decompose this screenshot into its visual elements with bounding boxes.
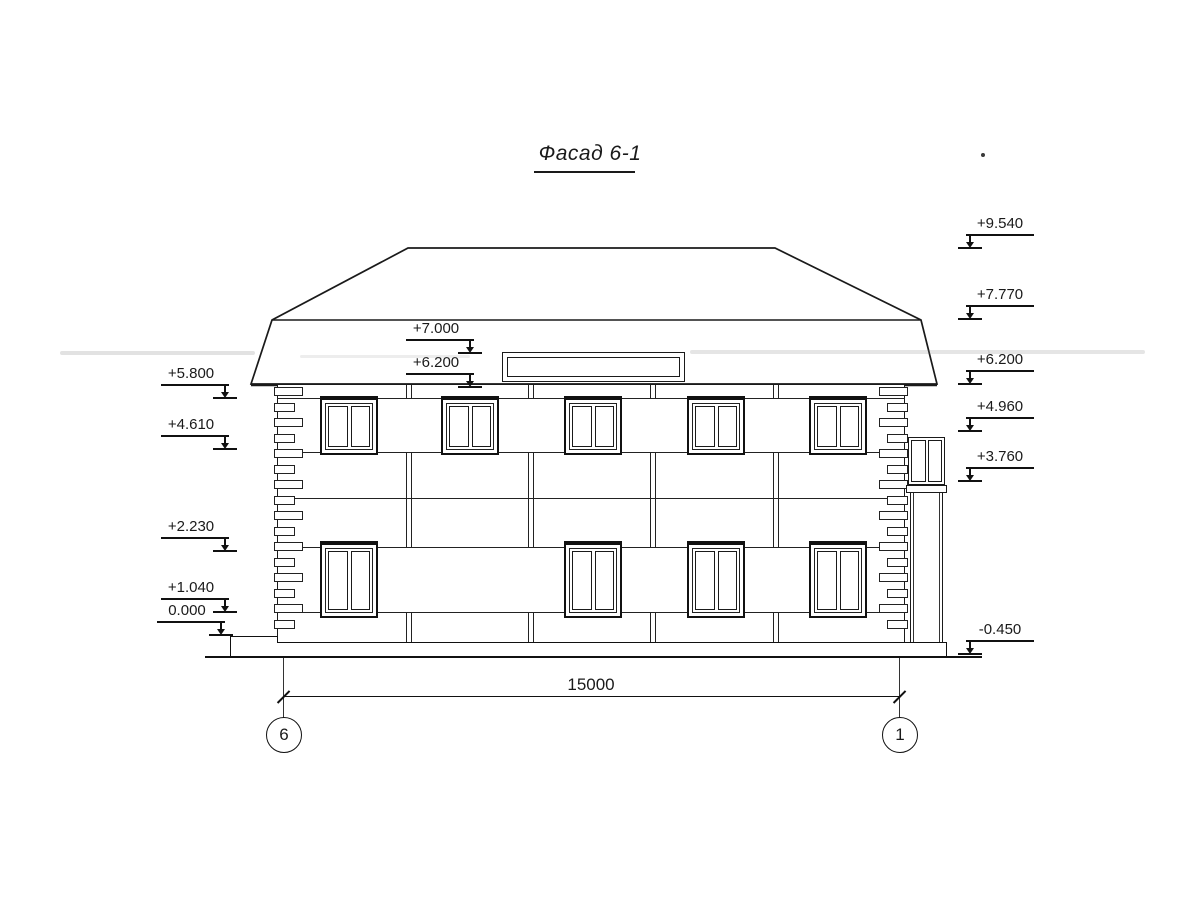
quoin-brick (879, 387, 908, 396)
quoin-brick (879, 480, 908, 489)
leader-line (157, 621, 225, 623)
plinth-step (230, 636, 278, 656)
window-pane (817, 551, 837, 610)
quoin-brick (879, 511, 908, 520)
grid-bubble-1: 1 (882, 717, 918, 753)
level-tick (958, 653, 982, 655)
window-pane (351, 406, 371, 447)
quoin-brick (887, 434, 908, 443)
elevation-value: +7.000 (404, 320, 468, 337)
leader-line (966, 467, 1034, 469)
window-upper-4 (687, 396, 745, 455)
tower-shaft (910, 493, 943, 656)
plinth (277, 642, 947, 656)
quoin-brick (274, 558, 295, 567)
quoin-brick (879, 542, 908, 551)
window-pane (928, 440, 943, 482)
quoin-brick (274, 496, 295, 505)
quoin-brick (274, 480, 303, 489)
quoin-brick (274, 527, 295, 536)
level-tick (213, 550, 237, 552)
pilaster (650, 385, 656, 398)
elevation-value: +5.800 (159, 365, 223, 382)
level-tick (458, 386, 482, 388)
pilaster (528, 385, 534, 398)
leader-line (161, 598, 229, 600)
level-tick (209, 634, 233, 636)
window-pane (595, 406, 615, 447)
window-pane (328, 551, 348, 610)
quoin-brick (887, 620, 908, 629)
window-pane (840, 406, 860, 447)
window-pane (718, 406, 738, 447)
pilaster (773, 452, 779, 547)
quoin-brick (274, 573, 303, 582)
quoin-brick (879, 573, 908, 582)
quoin-brick (274, 434, 295, 443)
window-pane (718, 551, 738, 610)
pilaster (406, 612, 412, 642)
elevation-value: +3.760 (968, 448, 1032, 465)
quoin-brick (887, 465, 908, 474)
elevation-value: +7.770 (968, 286, 1032, 303)
quoin-brick (879, 418, 908, 427)
elevation-value: +9.540 (968, 215, 1032, 232)
pilaster (773, 612, 779, 642)
pilaster (773, 385, 779, 398)
attic-signboard-inner (507, 357, 680, 377)
dimension-label: 15000 (541, 675, 641, 695)
quoin-strip-left (274, 387, 308, 635)
quoin-brick (887, 558, 908, 567)
quoin-brick (274, 387, 303, 396)
quoin-brick (274, 449, 303, 458)
pilaster (528, 452, 534, 547)
window-pane (695, 406, 715, 447)
quoin-brick (274, 418, 303, 427)
window-upper-3 (564, 396, 622, 455)
window-pane (595, 551, 615, 610)
leader-line (966, 417, 1034, 419)
level-tick (958, 383, 982, 385)
elevation-value: 0.000 (155, 602, 219, 619)
grid-axis-number: 6 (279, 725, 288, 745)
attic-signboard (502, 352, 685, 382)
window-lower-1 (320, 541, 378, 618)
quoin-brick (274, 511, 303, 520)
elevation-value: +6.200 (968, 351, 1032, 368)
quoin-brick (274, 604, 303, 613)
quoin-brick (274, 542, 303, 551)
facade-drawing: Фасад 6-1 (0, 0, 1200, 900)
window-pane (572, 551, 592, 610)
tower-window (908, 437, 945, 485)
extension-line-axis-6 (283, 658, 284, 718)
quoin-brick (274, 620, 295, 629)
leader-line (966, 640, 1034, 642)
level-tick (958, 247, 982, 249)
leader-line (406, 339, 474, 341)
pilaster (650, 612, 656, 642)
pilaster (528, 612, 534, 642)
window-upper-2 (441, 396, 499, 455)
course-line-mid (277, 498, 905, 499)
quoin-brick (887, 527, 908, 536)
elevation-value: -0.450 (968, 621, 1032, 638)
elevation-value: +2.230 (159, 518, 223, 535)
elevation-value: +6.200 (404, 354, 468, 371)
window-pane (695, 551, 715, 610)
window-pane (351, 551, 371, 610)
tower-sill (906, 485, 947, 493)
ground-line (205, 656, 982, 658)
level-tick (958, 318, 982, 320)
leader-line (406, 373, 474, 375)
quoin-brick (887, 403, 908, 412)
window-upper-5 (809, 396, 867, 455)
quoin-brick (879, 449, 908, 458)
grid-axis-number: 1 (895, 725, 904, 745)
level-tick (958, 430, 982, 432)
ink-dot (981, 153, 985, 157)
leader-line (966, 234, 1034, 236)
pilaster (406, 452, 412, 547)
window-pane (817, 406, 837, 447)
elevation-value: +1.040 (159, 579, 223, 596)
leader-line (966, 370, 1034, 372)
pilaster (650, 452, 656, 547)
quoin-strip-right (874, 387, 908, 635)
quoin-brick (274, 403, 295, 412)
elevation-value: +4.610 (159, 416, 223, 433)
window-lower-3 (687, 541, 745, 618)
quoin-brick (879, 604, 908, 613)
quoin-brick (274, 465, 295, 474)
window-pane (472, 406, 492, 447)
dimension-line (283, 696, 900, 697)
quoin-brick (274, 589, 295, 598)
quoin-brick (887, 496, 908, 505)
level-tick (213, 448, 237, 450)
quoin-brick (887, 589, 908, 598)
elevation-value: +4.960 (968, 398, 1032, 415)
window-lower-2 (564, 541, 622, 618)
grid-bubble-6: 6 (266, 717, 302, 753)
pilaster (406, 385, 412, 398)
level-tick (958, 480, 982, 482)
leader-line (161, 435, 229, 437)
leader-line (161, 384, 229, 386)
leader-line (161, 537, 229, 539)
extension-line-axis-1 (899, 658, 900, 718)
window-pane (911, 440, 926, 482)
window-pane (572, 406, 592, 447)
window-pane (840, 551, 860, 610)
window-upper-1 (320, 396, 378, 455)
window-pane (328, 406, 348, 447)
window-lower-4 (809, 541, 867, 618)
window-pane (449, 406, 469, 447)
leader-line (966, 305, 1034, 307)
level-tick (213, 397, 237, 399)
